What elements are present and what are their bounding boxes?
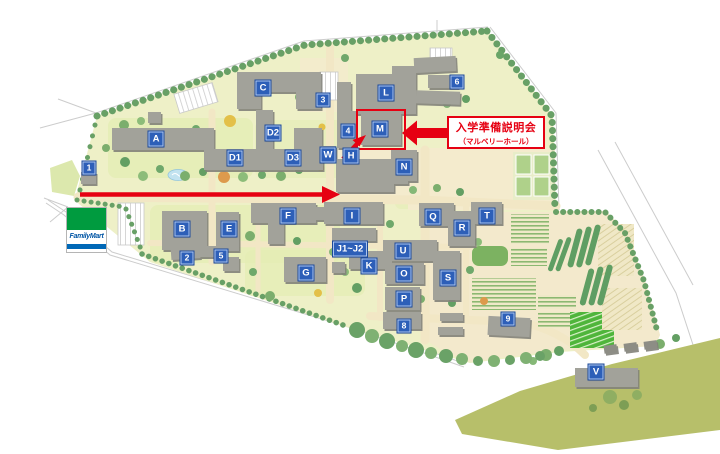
gate-marker-2: 2	[181, 252, 194, 265]
gate-marker-3: 3	[317, 94, 330, 107]
gate-marker-6: 6	[451, 76, 464, 89]
familymart-name: FamilyMart	[67, 230, 106, 243]
familymart-bottom-band	[67, 249, 106, 252]
building-marker-l: L	[379, 86, 394, 101]
building-marker-d3: D3	[286, 151, 301, 166]
building-marker-a: A	[149, 132, 164, 147]
gate-marker-5: 5	[215, 250, 228, 263]
building-marker-v: V	[589, 365, 604, 380]
building-marker-d1: D1	[228, 151, 243, 166]
building-marker-p: P	[397, 292, 412, 307]
building-marker-m: M	[373, 122, 388, 137]
campus-map: 1 A C 3 L 6 4 M W H N D2 D1 D3 B 2 E 5 F…	[0, 0, 720, 454]
building-marker-u: U	[396, 244, 411, 259]
familymart-sign: FamilyMart	[66, 207, 107, 253]
building-marker-w: W	[321, 148, 336, 163]
event-annotation-box: 入学準備説明会 （マルベリーホール）	[447, 116, 545, 149]
familymart-green-band	[67, 208, 106, 230]
building-marker-c: C	[256, 81, 271, 96]
building-marker-q: Q	[426, 210, 441, 225]
building-marker-o: O	[397, 267, 412, 282]
building-marker-h: H	[344, 149, 359, 164]
building-marker-j1-j2: J1~J2	[333, 242, 367, 257]
building-marker-k: K	[362, 259, 377, 274]
building-marker-e: E	[222, 222, 237, 237]
gate-marker-4: 4	[342, 125, 355, 138]
gate-marker-1: 1	[83, 162, 96, 175]
campus-map-illustration	[0, 0, 720, 454]
event-annotation-subtitle: （マルベリーホール）	[459, 136, 534, 147]
building-marker-b: B	[175, 222, 190, 237]
gate-marker-8: 8	[398, 320, 411, 333]
gate-marker-9: 9	[502, 313, 515, 326]
building-marker-g: G	[299, 266, 314, 281]
building-marker-i: I	[345, 209, 360, 224]
event-annotation-title: 入学準備説明会	[456, 119, 537, 135]
building-marker-s: S	[441, 271, 456, 286]
building-marker-f: F	[281, 209, 296, 224]
building-marker-r: R	[455, 221, 470, 236]
building-marker-d2: D2	[266, 126, 281, 141]
building-marker-t: T	[480, 209, 495, 224]
building-marker-n: N	[397, 160, 412, 175]
